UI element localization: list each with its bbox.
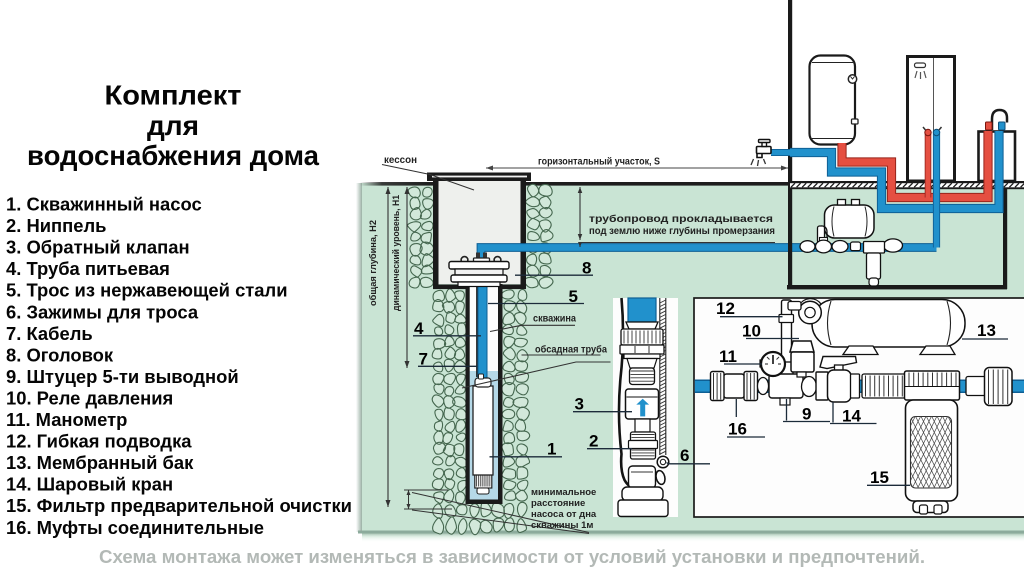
svg-text:15. Фильтр предварительной очи: 15. Фильтр предварительной очистки [6, 495, 352, 516]
svg-text:15: 15 [870, 468, 889, 487]
svg-text:трубопровод прокладывается: трубопровод прокладывается [589, 213, 773, 225]
svg-text:2. Ниппель: 2. Ниппель [6, 215, 106, 236]
svg-text:4: 4 [414, 319, 424, 338]
svg-text:динамический уровень, Н1: динамический уровень, Н1 [391, 195, 401, 311]
svg-text:7: 7 [419, 350, 428, 369]
svg-text:скважина: скважина [533, 313, 576, 325]
svg-text:минимальное: минимальное [531, 487, 596, 498]
svg-text:5: 5 [569, 287, 578, 306]
svg-text:10: 10 [742, 322, 761, 341]
svg-text:горизонтальный участок, S: горизонтальный участок, S [538, 156, 660, 168]
svg-text:расстояние: расстояние [531, 498, 585, 509]
svg-text:кессон: кессон [384, 154, 417, 166]
svg-text:Комплект: Комплект [105, 80, 242, 111]
svg-text:16. Муфты соединительные: 16. Муфты соединительные [6, 517, 264, 538]
svg-text:14: 14 [842, 407, 861, 426]
svg-text:16: 16 [728, 420, 747, 439]
svg-text:10. Реле давления: 10. Реле давления [6, 387, 173, 408]
svg-text:3. Обратный клапан: 3. Обратный клапан [6, 237, 190, 258]
svg-text:под землю ниже глубины промерз: под землю ниже глубины промерзания [589, 225, 775, 237]
svg-text:9: 9 [802, 405, 811, 424]
svg-text:для: для [147, 110, 199, 141]
svg-text:3: 3 [575, 395, 584, 414]
svg-text:13. Мембранный бак: 13. Мембранный бак [6, 452, 194, 473]
svg-text:9. Штуцер 5-ти выводной: 9. Штуцер 5-ти выводной [6, 366, 239, 387]
svg-text:насоса от дна: насоса от дна [531, 509, 597, 520]
svg-text:12. Гибкая подводка: 12. Гибкая подводка [6, 431, 192, 452]
svg-text:Схема монтажа может изменяться: Схема монтажа может изменяться в зависим… [99, 547, 925, 567]
svg-text:7. Кабель: 7. Кабель [6, 323, 93, 344]
svg-text:6. Зажимы для троса: 6. Зажимы для троса [6, 301, 199, 322]
svg-text:общая глубина, Н2: общая глубина, Н2 [368, 220, 378, 306]
svg-text:6: 6 [680, 446, 689, 465]
svg-text:1: 1 [547, 440, 556, 459]
svg-text:водоснабжения дома: водоснабжения дома [27, 140, 319, 171]
svg-text:4. Труба питьевая: 4. Труба питьевая [6, 258, 170, 279]
svg-text:11. Манометр: 11. Манометр [6, 409, 127, 430]
svg-text:скважины 1м: скважины 1м [531, 520, 593, 531]
svg-text:12: 12 [716, 299, 735, 318]
svg-text:14. Шаровый кран: 14. Шаровый кран [6, 474, 173, 495]
svg-text:8: 8 [582, 259, 591, 278]
svg-text:обсадная труба: обсадная труба [535, 344, 607, 356]
svg-text:5. Трос из нержавеющей стали: 5. Трос из нержавеющей стали [6, 280, 288, 301]
svg-text:13: 13 [977, 321, 996, 340]
svg-text:2: 2 [589, 432, 598, 451]
svg-text:1. Скважинный насос: 1. Скважинный насос [6, 194, 202, 215]
svg-text:8. Оголовок: 8. Оголовок [6, 344, 114, 365]
svg-text:11: 11 [719, 347, 737, 366]
